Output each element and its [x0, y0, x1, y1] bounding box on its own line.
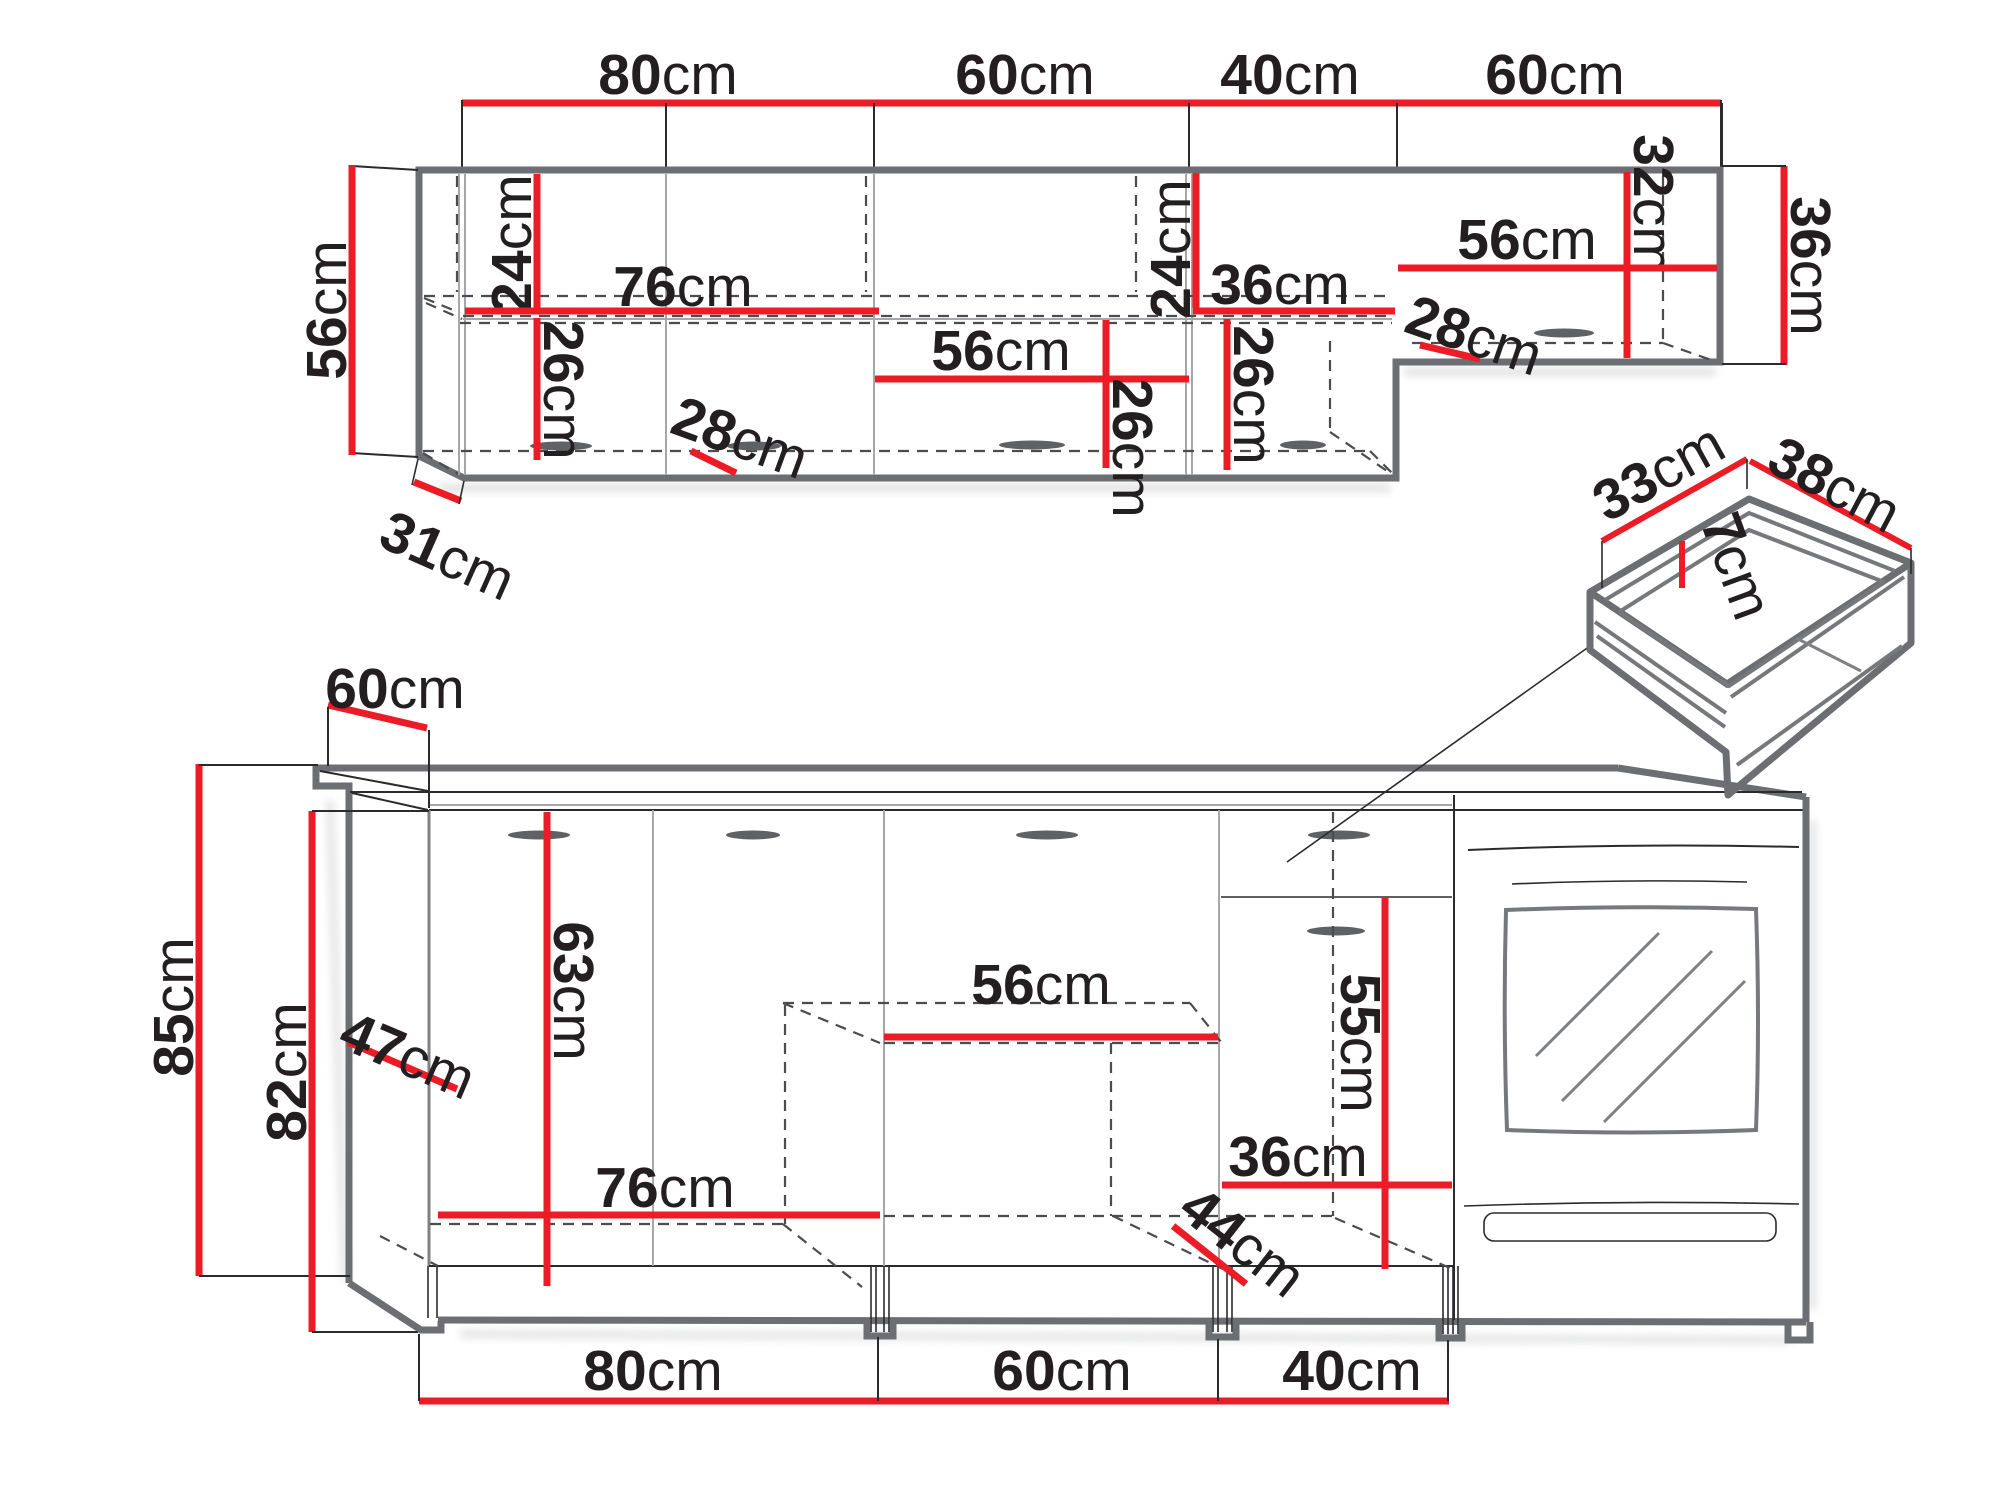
svg-text:33cm: 33cm — [1582, 411, 1735, 535]
svg-text:60cm: 60cm — [325, 657, 464, 721]
svg-text:24cm: 24cm — [1139, 179, 1203, 318]
svg-text:26cm: 26cm — [1221, 325, 1285, 464]
svg-text:31cm: 31cm — [371, 498, 524, 613]
svg-text:24cm: 24cm — [480, 174, 544, 313]
svg-text:82cm: 82cm — [255, 1002, 319, 1141]
svg-text:36cm: 36cm — [1210, 253, 1349, 317]
svg-text:80cm: 80cm — [583, 1339, 722, 1403]
svg-text:60cm: 60cm — [1485, 43, 1624, 107]
svg-text:26cm: 26cm — [531, 320, 595, 459]
svg-text:56cm: 56cm — [1457, 208, 1596, 272]
svg-text:36cm: 36cm — [1778, 196, 1842, 335]
svg-text:40cm: 40cm — [1220, 43, 1359, 107]
svg-text:76cm: 76cm — [595, 1156, 734, 1220]
svg-text:26cm: 26cm — [1100, 378, 1164, 517]
svg-text:63cm: 63cm — [541, 921, 605, 1060]
svg-text:56cm: 56cm — [931, 319, 1070, 383]
svg-text:36cm: 36cm — [1228, 1125, 1367, 1189]
svg-text:56cm: 56cm — [971, 953, 1110, 1017]
svg-text:32cm: 32cm — [1621, 134, 1685, 273]
svg-text:40cm: 40cm — [1282, 1339, 1421, 1403]
svg-text:80cm: 80cm — [598, 43, 737, 107]
svg-text:76cm: 76cm — [613, 255, 752, 319]
svg-text:47cm: 47cm — [331, 999, 484, 1112]
svg-text:56cm: 56cm — [295, 240, 359, 379]
svg-text:60cm: 60cm — [992, 1339, 1131, 1403]
svg-text:55cm: 55cm — [1328, 973, 1392, 1112]
svg-text:60cm: 60cm — [955, 43, 1094, 107]
svg-text:85cm: 85cm — [142, 937, 206, 1076]
